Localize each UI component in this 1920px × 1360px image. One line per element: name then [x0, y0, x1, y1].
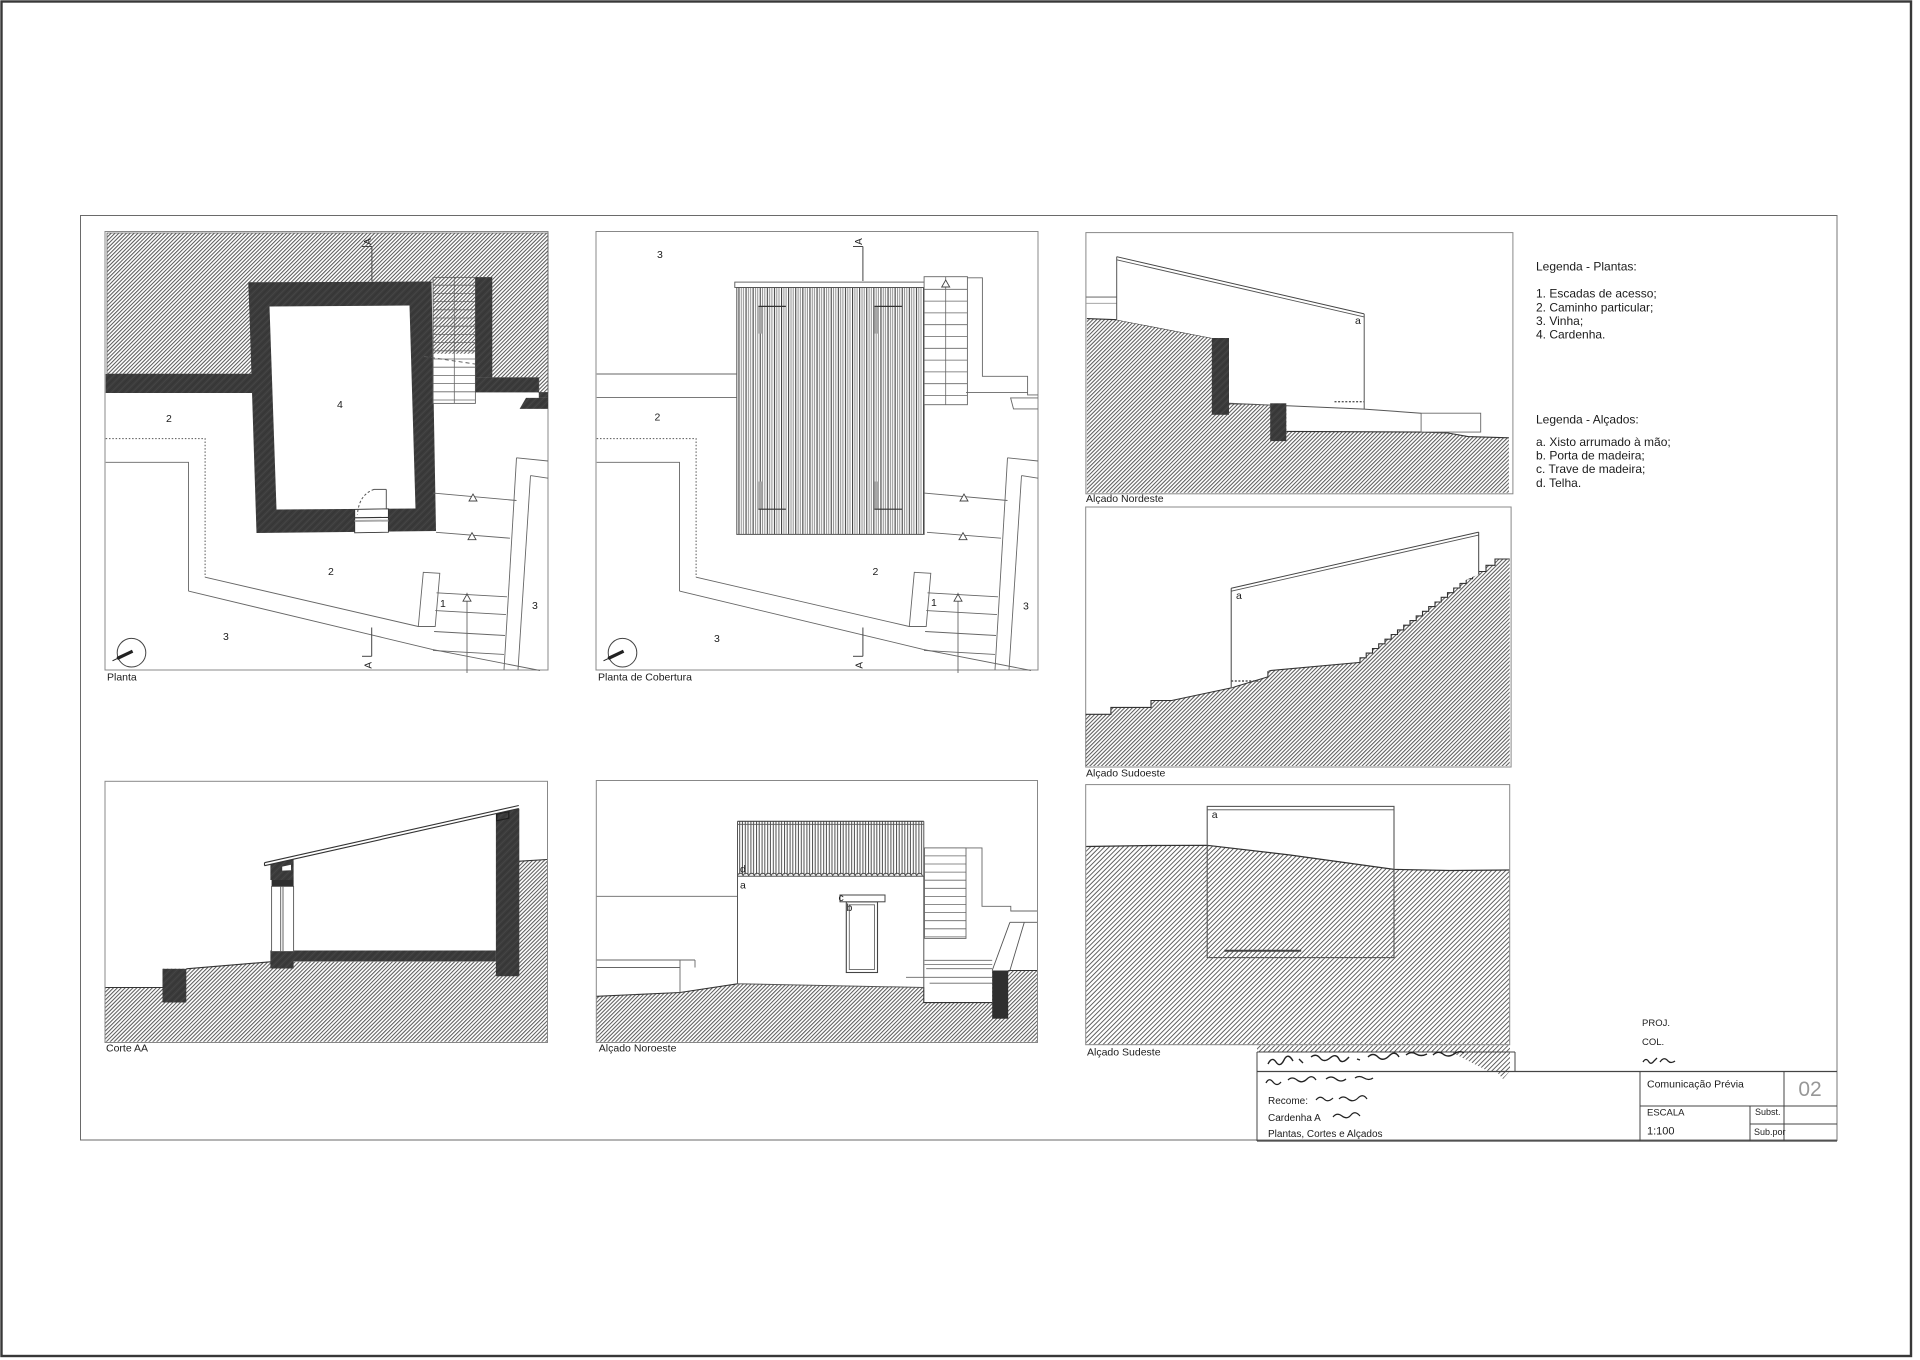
svg-text:1. Escadas de acesso;: 1. Escadas de acesso; [1536, 287, 1657, 301]
svg-text:a: a [1355, 315, 1361, 327]
svg-text:b: b [847, 902, 853, 914]
svg-text:Sub.por: Sub.por [1754, 1127, 1786, 1137]
svg-text:Recome:: Recome: [1268, 1096, 1308, 1107]
svg-text:4: 4 [337, 399, 343, 411]
svg-text:Corte AA: Corte AA [106, 1043, 148, 1055]
svg-text:Alçado Sudeste: Alçado Sudeste [1087, 1047, 1161, 1059]
svg-text:1:100: 1:100 [1647, 1126, 1675, 1138]
svg-text:Comunicação Prévia: Comunicação Prévia [1647, 1079, 1744, 1091]
svg-text:c. Trave de madeira;: c. Trave de madeira; [1536, 462, 1645, 476]
svg-text:a. Xisto arrumado à mão;: a. Xisto arrumado à mão; [1536, 435, 1671, 449]
svg-text:A: A [363, 662, 374, 669]
svg-text:Alçado Noroeste: Alçado Noroeste [599, 1043, 677, 1055]
svg-text:A: A [854, 662, 865, 669]
svg-text:A: A [363, 238, 374, 245]
svg-text:Alçado Sudoeste: Alçado Sudoeste [1086, 768, 1166, 780]
svg-text:2: 2 [655, 412, 661, 424]
svg-text:Subst.: Subst. [1755, 1107, 1781, 1117]
svg-text:1: 1 [440, 598, 446, 610]
svg-text:2: 2 [166, 413, 172, 425]
svg-text:PROJ.: PROJ. [1642, 1018, 1670, 1029]
svg-text:ESCALA: ESCALA [1647, 1108, 1685, 1119]
svg-text:Legenda - Alçados:: Legenda - Alçados: [1536, 412, 1639, 426]
svg-text:c: c [839, 892, 844, 904]
svg-text:Plantas, Cortes e Alçados: Plantas, Cortes e Alçados [1268, 1129, 1383, 1140]
svg-text:A: A [854, 238, 865, 245]
svg-text:Cardenha A: Cardenha A [1268, 1113, 1321, 1124]
svg-text:3: 3 [532, 600, 538, 612]
svg-text:Planta: Planta [107, 672, 137, 684]
svg-text:4. Cardenha.: 4. Cardenha. [1536, 328, 1605, 342]
svg-text:2: 2 [873, 566, 879, 578]
svg-text:b. Porta de madeira;: b. Porta de madeira; [1536, 449, 1645, 463]
svg-text:3: 3 [223, 631, 229, 643]
svg-text:Legenda - Plantas:: Legenda - Plantas: [1536, 260, 1637, 274]
svg-text:Alçado Nordeste: Alçado Nordeste [1086, 493, 1164, 505]
svg-text:a: a [1236, 590, 1242, 602]
svg-text:d: d [740, 864, 746, 876]
svg-text:3: 3 [714, 633, 720, 645]
svg-text:a: a [1212, 809, 1218, 821]
svg-text:COL.: COL. [1642, 1037, 1664, 1048]
svg-text:2: 2 [328, 566, 334, 578]
svg-text:02: 02 [1798, 1078, 1821, 1101]
svg-text:Planta de Cobertura: Planta de Cobertura [598, 672, 692, 684]
svg-text:1: 1 [931, 597, 937, 609]
svg-text:3: 3 [657, 249, 663, 261]
svg-text:2. Caminho particular;: 2. Caminho particular; [1536, 300, 1653, 314]
svg-text:a: a [740, 880, 746, 892]
svg-text:d. Telha.: d. Telha. [1536, 476, 1581, 490]
svg-text:3. Vinha;: 3. Vinha; [1536, 314, 1583, 328]
svg-text:3: 3 [1023, 601, 1029, 613]
